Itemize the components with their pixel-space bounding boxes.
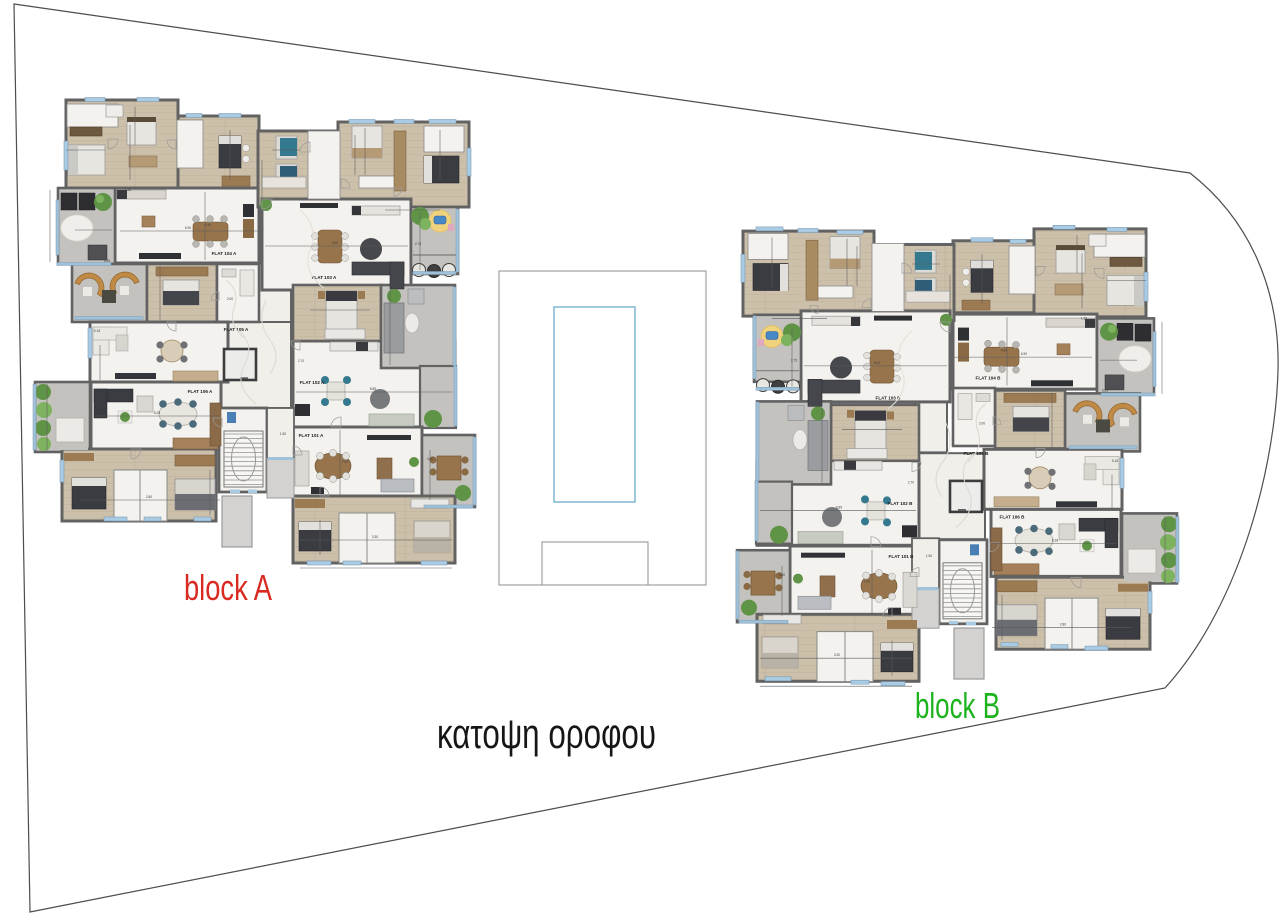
svg-text:FLAT 104 B: FLAT 104 B bbox=[976, 376, 1002, 381]
svg-text:3.30: 3.30 bbox=[834, 653, 840, 657]
svg-text:block B: block B bbox=[915, 685, 1000, 726]
svg-text:FLAT 106 B: FLAT 106 B bbox=[1000, 515, 1026, 520]
svg-text:3.30: 3.30 bbox=[372, 535, 378, 539]
svg-text:FLAT 104 A: FLAT 104 A bbox=[212, 251, 237, 256]
svg-text:2.75: 2.75 bbox=[791, 358, 797, 362]
svg-text:8.85: 8.85 bbox=[836, 505, 842, 509]
svg-text:FLAT 103 A: FLAT 103 A bbox=[312, 275, 337, 280]
svg-text:7.00: 7.00 bbox=[864, 580, 870, 584]
svg-text:1.65: 1.65 bbox=[125, 188, 131, 192]
svg-text:8.28: 8.28 bbox=[1052, 538, 1058, 542]
svg-text:4.50: 4.50 bbox=[779, 573, 785, 577]
svg-text:1.65: 1.65 bbox=[1081, 317, 1087, 321]
svg-text:2.75: 2.75 bbox=[415, 242, 421, 246]
svg-text:2.70: 2.70 bbox=[908, 480, 914, 484]
svg-text:7.00: 7.00 bbox=[342, 460, 348, 464]
svg-text:2.80: 2.80 bbox=[146, 495, 152, 499]
svg-text:6.85: 6.85 bbox=[104, 259, 110, 263]
svg-text:κατοψη οροφου: κατοψη οροφου bbox=[437, 710, 656, 757]
svg-text:6.00: 6.00 bbox=[332, 241, 338, 245]
svg-text:2.00: 2.00 bbox=[979, 421, 985, 425]
svg-text:4.40: 4.40 bbox=[1001, 348, 1007, 352]
svg-text:FLAT 102 A: FLAT 102 A bbox=[300, 380, 325, 385]
svg-text:6.90: 6.90 bbox=[1021, 352, 1027, 356]
svg-text:2.70: 2.70 bbox=[298, 359, 304, 363]
svg-text:6.90: 6.90 bbox=[185, 226, 191, 230]
svg-text:4.40: 4.40 bbox=[205, 223, 211, 227]
svg-text:2.80: 2.80 bbox=[1060, 623, 1066, 627]
svg-text:4.50: 4.50 bbox=[427, 457, 433, 461]
svg-text:FLAT 106 A: FLAT 106 A bbox=[188, 389, 213, 394]
svg-text:5.18: 5.18 bbox=[94, 329, 100, 333]
svg-text:2.00: 2.00 bbox=[227, 297, 233, 301]
svg-text:FLAT 101 A: FLAT 101 A bbox=[299, 433, 324, 438]
svg-text:1.50: 1.50 bbox=[280, 432, 286, 436]
svg-text:6.85: 6.85 bbox=[1102, 389, 1108, 393]
svg-text:FLAT 102 B: FLAT 102 B bbox=[888, 501, 914, 506]
svg-text:FLAT 101 B: FLAT 101 B bbox=[889, 554, 915, 559]
svg-text:5.18: 5.18 bbox=[1112, 459, 1118, 463]
svg-text:6.00: 6.00 bbox=[874, 361, 880, 365]
svg-text:block A: block A bbox=[184, 567, 272, 608]
svg-text:8.85: 8.85 bbox=[370, 387, 376, 391]
svg-text:1.50: 1.50 bbox=[926, 554, 932, 558]
svg-text:8.28: 8.28 bbox=[154, 411, 160, 415]
